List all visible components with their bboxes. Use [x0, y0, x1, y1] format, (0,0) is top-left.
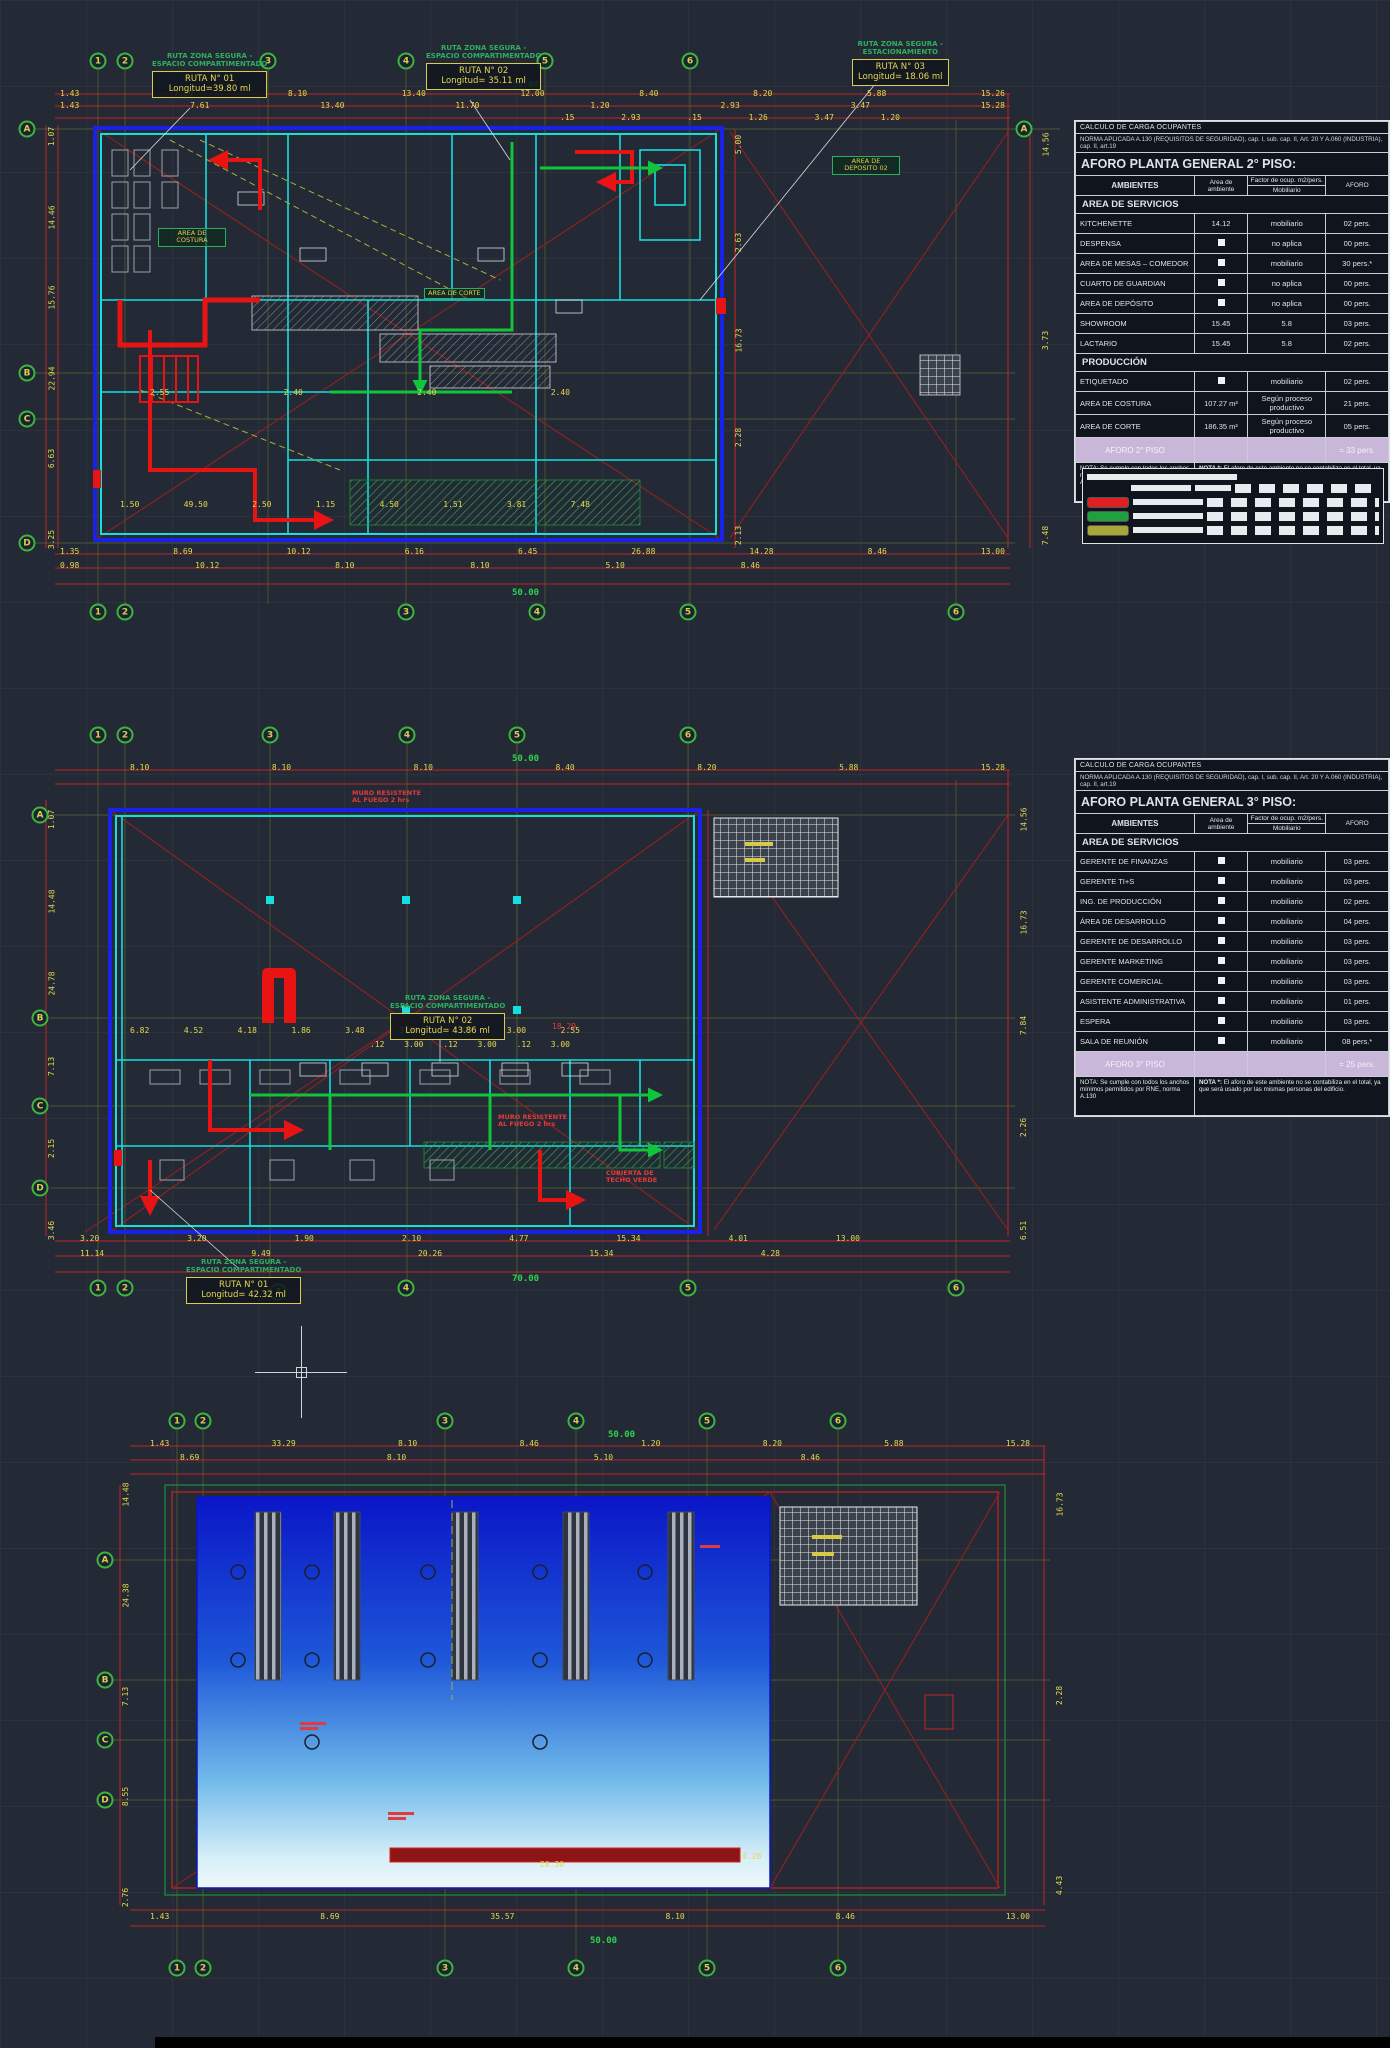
- cell-area: [1194, 932, 1247, 952]
- legend-bar: [1195, 485, 1231, 491]
- legend-bar: [1133, 527, 1203, 533]
- grid-bubble: 4: [398, 1280, 415, 1297]
- cell-aforo: 08 pers.*: [1326, 1032, 1389, 1052]
- cell-factor: mobiliario: [1248, 254, 1326, 274]
- cell-aforo: 03 pers.: [1326, 1012, 1389, 1032]
- filled-square-glyph: [1218, 957, 1225, 964]
- cell-factor: no aplica: [1248, 234, 1326, 254]
- overall-dimension: 50.00: [590, 1936, 617, 1946]
- route-callout-box: RUTA N° 01Longitud= 42.32 ml: [186, 1277, 301, 1304]
- cell-factor: mobiliario: [1248, 992, 1326, 1012]
- cell-area: [1194, 274, 1247, 294]
- col-aforo: AFORO: [1326, 814, 1389, 834]
- cell-factor: mobiliario: [1248, 1032, 1326, 1052]
- cell-aforo: 21 pers.: [1326, 392, 1389, 415]
- total-cell: AFORO 2° PISO: [1076, 438, 1195, 463]
- cell-aforo: 03 pers.: [1326, 932, 1389, 952]
- grid-bubble: 1: [169, 1413, 186, 1430]
- grid-bubble: 5: [699, 1413, 716, 1430]
- route-callout: RUTA ZONA SEGURA -ESPACIO COMPARTIMENTAD…: [186, 1258, 301, 1304]
- cell-name: GERENTE DE FINANZAS: [1076, 852, 1195, 872]
- grid-bubble: D: [19, 535, 36, 552]
- annotation-label: MURO RESISTENTEAL FUEGO 2 hrs: [352, 790, 421, 804]
- cell-area: 186.35 m²: [1194, 415, 1247, 438]
- table-row: GERENTE DE FINANZASmobiliario03 pers.: [1076, 852, 1389, 872]
- col-factor-sub: Mobiliario: [1248, 824, 1325, 833]
- filled-square-glyph: [1218, 259, 1225, 266]
- cell-factor: mobiliario: [1248, 214, 1326, 234]
- table-row: SALA DE REUNIÓNmobiliario08 pers.*: [1076, 1032, 1389, 1052]
- table-row: AREA DE MESAS – COMEDORmobiliario30 pers…: [1076, 254, 1389, 274]
- grid-bubble: 3: [398, 604, 415, 621]
- cell-aforo: 02 pers.: [1326, 892, 1389, 912]
- table-note1: NOTA: Se cumple con todos los anchos mín…: [1076, 1077, 1195, 1116]
- filled-square-glyph: [1218, 239, 1225, 246]
- cell-area: 107.27 m²: [1194, 392, 1247, 415]
- grid-bubble: 5: [680, 604, 697, 621]
- note2-body: El aforo de este ambiente no se contabil…: [1199, 1079, 1381, 1093]
- cell-aforo: 00 pers.: [1326, 234, 1389, 254]
- cell-aforo: 00 pers.: [1326, 274, 1389, 294]
- grid-bubble: D: [97, 1792, 114, 1809]
- cell-factor: 5.8: [1248, 334, 1326, 354]
- table-row: ÁREA DE DESARROLLOmobiliario04 pers.: [1076, 912, 1389, 932]
- cell-area: 15.45: [1194, 314, 1247, 334]
- cell-factor: mobiliario: [1248, 932, 1326, 952]
- occupancy-table-floor2: CALCULO DE CARGA OCUPANTES NORMA APLICAD…: [1074, 120, 1390, 503]
- cell-aforo: 03 pers.: [1326, 872, 1389, 892]
- col-aforo: AFORO: [1326, 176, 1389, 196]
- cell-factor: mobiliario: [1248, 872, 1326, 892]
- filled-square-glyph: [1218, 299, 1225, 306]
- route-callout-header: RUTA ZONA SEGURA -ESPACIO COMPARTIMENTAD…: [186, 1258, 301, 1275]
- cell-name: AREA DE MESAS – COMEDOR: [1076, 254, 1195, 274]
- route-callout: RUTA ZONA SEGURA -ESPACIO COMPARTIMENTAD…: [426, 44, 541, 90]
- grid-bubble: 6: [682, 53, 699, 70]
- total-cell: AFORO 3° PISO: [1076, 1052, 1195, 1077]
- cell-aforo: 03 pers.: [1326, 972, 1389, 992]
- route-legend-table: [1082, 468, 1384, 544]
- legend-swatch-olive: [1087, 525, 1129, 536]
- grid-bubble: 6: [830, 1413, 847, 1430]
- route-callout-box: RUTA N° 02Longitud= 35.11 ml: [426, 63, 541, 90]
- cell-area: [1194, 992, 1247, 1012]
- table-section-row: AREA DE SERVICIOS: [1076, 834, 1389, 852]
- table-norm: NORMA APLICADA A.130 (REQUISITOS DE SEGU…: [1076, 134, 1389, 153]
- cell-area: [1194, 234, 1247, 254]
- filled-square-glyph: [1218, 937, 1225, 944]
- cell-factor: no aplica: [1248, 294, 1326, 314]
- grid-bubble: 1: [90, 1280, 107, 1297]
- grid-bubble: 2: [117, 1280, 134, 1297]
- col-area: Area de ambiente: [1194, 176, 1247, 196]
- legend-cells: [1207, 526, 1379, 535]
- cell-area: [1194, 892, 1247, 912]
- grid-bubble: C: [32, 1098, 49, 1115]
- grid-bubble: 3: [437, 1413, 454, 1430]
- table-total-row: AFORO 3° PISO= 25 pers.: [1076, 1052, 1389, 1077]
- cell-name: AREA DE COSTURA: [1076, 392, 1195, 415]
- cell-factor: mobiliario: [1248, 1012, 1326, 1032]
- cell-area: [1194, 852, 1247, 872]
- table-row: SHOWROOM15.455.803 pers.: [1076, 314, 1389, 334]
- cell-name: GERENTE TI+S: [1076, 872, 1195, 892]
- legend-cells: [1235, 484, 1379, 493]
- table-section-row: PRODUCCIÓN: [1076, 354, 1389, 372]
- grid-bubble: 6: [948, 1280, 965, 1297]
- grid-bubble: 4: [568, 1413, 585, 1430]
- cell-aforo: 03 pers.: [1326, 852, 1389, 872]
- grid-bubble: 5: [680, 1280, 697, 1297]
- grid-bubble: 4: [399, 727, 416, 744]
- col-area: Area de ambiente: [1194, 814, 1247, 834]
- table-row: DESPENSAno aplica00 pers.: [1076, 234, 1389, 254]
- filled-square-glyph: [1218, 279, 1225, 286]
- floor-plan-3-linework: [46, 744, 1015, 1280]
- grid-bubble: 5: [509, 727, 526, 744]
- cell-name: ESPERA: [1076, 1012, 1195, 1032]
- legend-bar: [1133, 499, 1203, 505]
- route-callout-header: RUTA ZONA SEGURA -ESTACIONAMIENTO: [852, 40, 949, 57]
- cell-aforo: 03 pers.: [1326, 952, 1389, 972]
- route-callout: RUTA ZONA SEGURA -ESTACIONAMIENTORUTA N°…: [852, 40, 949, 86]
- cell-name: GERENTE DE DESARROLLO: [1076, 932, 1195, 952]
- legend-swatch-green: [1087, 511, 1129, 522]
- col-ambientes: AMBIENTES: [1076, 814, 1195, 834]
- filled-square-glyph: [1218, 997, 1225, 1004]
- cell-name: AREA DE DEPÓSITO: [1076, 294, 1195, 314]
- cell-aforo: 01 pers.: [1326, 992, 1389, 1012]
- table-row: AREA DE COSTURA107.27 m²Según proceso pr…: [1076, 392, 1389, 415]
- legend-bar: [1131, 485, 1191, 491]
- filled-square-glyph: [1218, 897, 1225, 904]
- cell-aforo: 05 pers.: [1326, 415, 1389, 438]
- cad-viewport[interactable]: 1.437.898.1013.4012.008.408.205.8815.26 …: [0, 0, 1390, 2048]
- total-cell: [1194, 438, 1247, 463]
- annotation-label: MURO RESISTENTEAL FUEGO 2 hrs: [498, 1114, 567, 1128]
- cell-factor: mobiliario: [1248, 952, 1326, 972]
- col-factor-top: Factor de ocup. m2/pers.: [1248, 814, 1325, 824]
- cell-aforo: 03 pers.: [1326, 314, 1389, 334]
- cell-name: SHOWROOM: [1076, 314, 1195, 334]
- cell-area: [1194, 1032, 1247, 1052]
- col-factor: Factor de ocup. m2/pers. Mobiliario: [1248, 814, 1326, 834]
- table-row: GERENTE TI+Smobiliario03 pers.: [1076, 872, 1389, 892]
- cell-area: [1194, 952, 1247, 972]
- cell-area: [1194, 372, 1247, 392]
- table-row: GERENTE DE DESARROLLOmobiliario03 pers.: [1076, 932, 1389, 952]
- grid-bubble: 4: [568, 1960, 585, 1977]
- overall-dimension: 50.00: [608, 1430, 635, 1440]
- col-ambientes: AMBIENTES: [1076, 176, 1195, 196]
- grid-bubble: 4: [398, 53, 415, 70]
- table-norm: NORMA APLICADA A.130 (REQUISITOS DE SEGU…: [1076, 772, 1389, 791]
- room-label: AREA DE DEPOSITO 02: [832, 156, 900, 175]
- grid-bubble: 1: [169, 1960, 186, 1977]
- cell-name: GERENTE COMERCIAL: [1076, 972, 1195, 992]
- overall-dimension: 50.00: [512, 588, 539, 598]
- grid-bubble: 1: [90, 604, 107, 621]
- room-label: AREA DE COSTURA: [158, 228, 226, 247]
- table-section-row: AREA DE SERVICIOS: [1076, 196, 1389, 214]
- grid-bubble: 5: [699, 1960, 716, 1977]
- grid-bubble: C: [19, 411, 36, 428]
- grid-bubble: 2: [195, 1413, 212, 1430]
- cell-name: AREA DE CORTE: [1076, 415, 1195, 438]
- table-header: CALCULO DE CARGA OCUPANTES: [1076, 760, 1389, 772]
- grid-bubble: 3: [262, 727, 279, 744]
- cell-area: [1194, 294, 1247, 314]
- grid-bubble: 2: [117, 53, 134, 70]
- overall-dimension: 50.00: [512, 754, 539, 764]
- cell-factor: Según proceso productivo: [1248, 415, 1326, 438]
- table-title: AFORO PLANTA GENERAL 2° PISO:: [1076, 153, 1389, 176]
- grid-bubble: B: [97, 1672, 114, 1689]
- section-label: PRODUCCIÓN: [1076, 354, 1389, 372]
- grid-bubble: D: [32, 1180, 49, 1197]
- grid-bubble: 1: [90, 727, 107, 744]
- filled-square-glyph: [1218, 917, 1225, 924]
- grid-bubble: A: [1016, 121, 1033, 138]
- grid-bubble: 4: [529, 604, 546, 621]
- col-factor: Factor de ocup. m2/pers. Mobiliario: [1248, 176, 1326, 196]
- grid-bubble: 2: [117, 604, 134, 621]
- table-row: GERENTE COMERCIALmobiliario03 pers.: [1076, 972, 1389, 992]
- cell-name: SALA DE REUNIÓN: [1076, 1032, 1195, 1052]
- grid-bubble: C: [97, 1732, 114, 1749]
- cell-name: DESPENSA: [1076, 234, 1195, 254]
- floor-plan-2-linework: [36, 70, 1060, 604]
- cell-factor: mobiliario: [1248, 852, 1326, 872]
- cell-name: GERENTE MARKETING: [1076, 952, 1195, 972]
- cell-aforo: 30 pers.*: [1326, 254, 1389, 274]
- route-callout: RUTA ZONA SEGURA -ESPACIO COMPARTIMENTAD…: [152, 52, 267, 98]
- filled-square-glyph: [1218, 377, 1225, 384]
- grid-bubble: 2: [117, 727, 134, 744]
- cell-name: ETIQUETADO: [1076, 372, 1195, 392]
- cell-factor: mobiliario: [1248, 912, 1326, 932]
- route-callout: RUTA ZONA SEGURA -ESPACIO COMPARTIMENTAD…: [390, 994, 505, 1040]
- table-title: AFORO PLANTA GENERAL 3° PISO:: [1076, 791, 1389, 814]
- route-callout-header: RUTA ZONA SEGURA -ESPACIO COMPARTIMENTAD…: [390, 994, 505, 1011]
- cell-area: [1194, 972, 1247, 992]
- legend-bar: [1133, 513, 1203, 519]
- grid-bubble: 2: [195, 1960, 212, 1977]
- grid-bubble: 6: [830, 1960, 847, 1977]
- cell-factor: mobiliario: [1248, 972, 1326, 992]
- cell-factor: mobiliario: [1248, 372, 1326, 392]
- cell-aforo: 02 pers.: [1326, 214, 1389, 234]
- route-callout-header: RUTA ZONA SEGURA -ESPACIO COMPARTIMENTAD…: [426, 44, 541, 61]
- filled-square-glyph: [1218, 977, 1225, 984]
- room-label: AREA DE CORTE: [424, 288, 485, 299]
- cell-aforo: 02 pers.: [1326, 372, 1389, 392]
- total-cell: = 25 pers.: [1326, 1052, 1389, 1077]
- table-row: LACTARIO15.455.802 pers.: [1076, 334, 1389, 354]
- filled-square-glyph: [1218, 877, 1225, 884]
- table-header: CALCULO DE CARGA OCUPANTES: [1076, 122, 1389, 134]
- cell-name: KITCHENETTE: [1076, 214, 1195, 234]
- filled-square-glyph: [1218, 1017, 1225, 1024]
- note2-title: NOTA *:: [1199, 1079, 1222, 1086]
- total-cell: [1194, 1052, 1247, 1077]
- cell-aforo: 02 pers.: [1326, 334, 1389, 354]
- filled-square-glyph: [1218, 1037, 1225, 1044]
- route-callout-header: RUTA ZONA SEGURA -ESPACIO COMPARTIMENTAD…: [152, 52, 267, 69]
- grid-bubble: B: [19, 365, 36, 382]
- total-cell: = 33 pers.: [1326, 438, 1389, 463]
- occupancy-table-floor3: CALCULO DE CARGA OCUPANTES NORMA APLICAD…: [1074, 758, 1390, 1117]
- cell-name: ASISTENTE ADMINISTRATIVA: [1076, 992, 1195, 1012]
- table-row: ING. DE PRODUCCIÓNmobiliario02 pers.: [1076, 892, 1389, 912]
- cell-factor: no aplica: [1248, 274, 1326, 294]
- cell-name: ING. DE PRODUCCIÓN: [1076, 892, 1195, 912]
- cell-factor: mobiliario: [1248, 892, 1326, 912]
- section-label: AREA DE SERVICIOS: [1076, 196, 1389, 214]
- route-callout-box: RUTA N° 01Longitud=39.80 ml: [152, 71, 267, 98]
- total-cell: [1248, 438, 1326, 463]
- legend-cells: [1207, 512, 1379, 521]
- grid-bubble: 6: [680, 727, 697, 744]
- grid-bubble: 3: [437, 1960, 454, 1977]
- col-factor-top: Factor de ocup. m2/pers.: [1248, 176, 1325, 186]
- legend-swatch-red: [1087, 497, 1129, 508]
- table-row: AREA DE CORTE186.35 m²Según proceso prod…: [1076, 415, 1389, 438]
- bottom-black-bar: [155, 2037, 1390, 2048]
- table-row: GERENTE MARKETINGmobiliario03 pers.: [1076, 952, 1389, 972]
- table-row: AREA DE DEPÓSITOno aplica00 pers.: [1076, 294, 1389, 314]
- cell-area: [1194, 872, 1247, 892]
- table-row: ASISTENTE ADMINISTRATIVAmobiliario01 per…: [1076, 992, 1389, 1012]
- roof-plan-linework: [112, 1430, 1050, 1960]
- grid-bubble: 1: [90, 53, 107, 70]
- filled-square-glyph: [1218, 857, 1225, 864]
- grid-bubble: A: [32, 807, 49, 824]
- section-label: AREA DE SERVICIOS: [1076, 834, 1389, 852]
- table-row: ESPERAmobiliario03 pers.: [1076, 1012, 1389, 1032]
- legend-header-bar: [1087, 474, 1237, 480]
- cell-area: 15.45: [1194, 334, 1247, 354]
- grid-bubble: A: [97, 1552, 114, 1569]
- route-callout-box: RUTA N° 02Longitud= 43.86 ml: [390, 1013, 505, 1040]
- cell-aforo: 04 pers.: [1326, 912, 1389, 932]
- cell-aforo: 00 pers.: [1326, 294, 1389, 314]
- total-cell: [1248, 1052, 1326, 1077]
- table-row: KITCHENETTE14.12mobiliario02 pers.: [1076, 214, 1389, 234]
- route-callout-box: RUTA N° 03Longitud= 18.06 ml: [852, 59, 949, 86]
- legend-cells: [1207, 498, 1379, 507]
- grid-bubble: B: [32, 1010, 49, 1027]
- cell-name: LACTARIO: [1076, 334, 1195, 354]
- cell-name: CUARTO DE GUARDIAN: [1076, 274, 1195, 294]
- cell-area: [1194, 254, 1247, 274]
- annotation-label: CUBIERTA DETECHO VERDE: [606, 1170, 657, 1184]
- overall-dimension: 70.00: [512, 1274, 539, 1284]
- cell-area: [1194, 1012, 1247, 1032]
- table-note2: NOTA *: El aforo de este ambiente no se …: [1194, 1077, 1388, 1116]
- cell-factor: 5.8: [1248, 314, 1326, 334]
- table-row: CUARTO DE GUARDIANno aplica00 pers.: [1076, 274, 1389, 294]
- col-factor-sub: Mobiliario: [1248, 186, 1325, 195]
- cell-area: 14.12: [1194, 214, 1247, 234]
- table-total-row: AFORO 2° PISO= 33 pers.: [1076, 438, 1389, 463]
- table-row: ETIQUETADOmobiliario02 pers.: [1076, 372, 1389, 392]
- grid-bubble: 6: [948, 604, 965, 621]
- cell-name: ÁREA DE DESARROLLO: [1076, 912, 1195, 932]
- cell-factor: Según proceso productivo: [1248, 392, 1326, 415]
- cell-area: [1194, 912, 1247, 932]
- grid-bubble: A: [19, 121, 36, 138]
